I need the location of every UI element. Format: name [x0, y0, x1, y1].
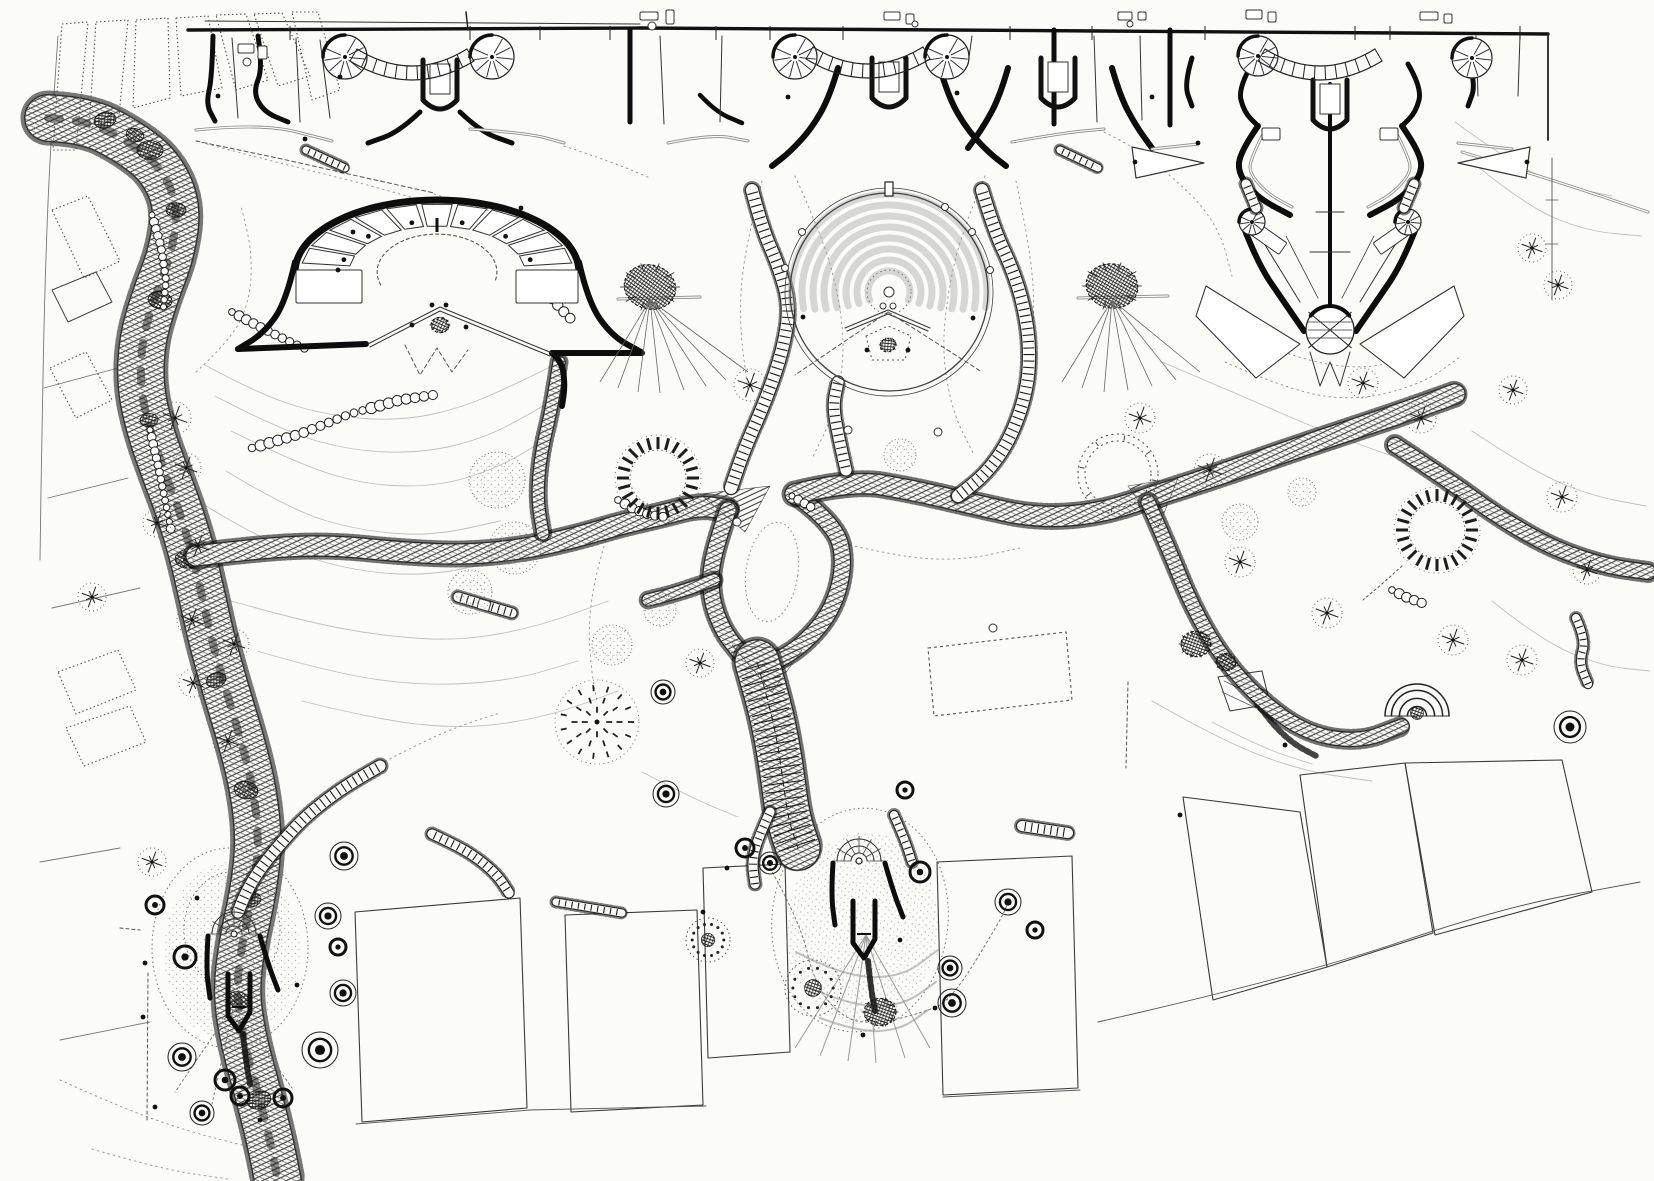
survey-dot	[141, 1015, 146, 1020]
survey-dot	[861, 1033, 866, 1038]
survey-dot	[258, 1118, 263, 1123]
small-circle	[989, 624, 997, 632]
small-circle	[648, 22, 656, 30]
stone-circle-target	[651, 680, 675, 704]
boulder	[166, 524, 175, 533]
furniture-rect	[1118, 12, 1132, 20]
small-circle	[733, 518, 741, 526]
planting-knoll	[489, 522, 541, 574]
survey-dot	[143, 961, 148, 966]
boulder	[163, 504, 170, 511]
site-plan-drawing	[0, 0, 1654, 1181]
small-circle	[912, 21, 918, 27]
survey-dot	[444, 303, 449, 308]
planting-knoll	[884, 439, 916, 471]
spiral-stair	[1238, 36, 1278, 76]
boulder	[333, 415, 342, 424]
survey-dot	[1150, 95, 1155, 100]
boulder	[160, 490, 167, 497]
furniture-rect	[884, 12, 900, 20]
boulder	[161, 297, 167, 303]
boulder	[162, 289, 169, 296]
planting-knoll	[1222, 504, 1258, 540]
boulder	[159, 483, 166, 490]
small-circle	[987, 267, 994, 274]
spiral-stair	[925, 35, 969, 79]
small-circle	[880, 303, 886, 309]
survey-dot	[195, 896, 200, 901]
boulder	[341, 412, 349, 420]
survey-dot	[933, 1006, 938, 1011]
furniture-rect	[296, 270, 362, 303]
small-circle	[844, 426, 852, 434]
survey-dot	[786, 95, 791, 100]
stone-circle-target	[938, 989, 966, 1017]
boulder	[324, 418, 333, 427]
boulder	[401, 394, 411, 404]
boulder	[156, 468, 164, 476]
survey-dot	[430, 303, 435, 308]
boulder	[806, 503, 814, 511]
survey-dot	[906, 348, 911, 353]
survey-dot	[351, 230, 356, 235]
planting-knoll	[644, 594, 676, 626]
small-circle	[782, 265, 789, 272]
furniture-rect	[1380, 128, 1398, 140]
boulder	[1417, 598, 1426, 607]
small-circle	[969, 229, 976, 236]
boulder	[162, 497, 169, 504]
small-circle	[799, 229, 806, 236]
small-circle	[243, 58, 251, 66]
survey-dot	[519, 206, 524, 211]
boulder	[162, 275, 169, 282]
small-circle	[942, 204, 949, 211]
boulder	[154, 461, 162, 469]
stone-circle-target	[190, 1101, 214, 1125]
boulder	[419, 392, 429, 402]
survey-dot	[464, 325, 469, 330]
survey-dot	[1178, 813, 1183, 818]
boulder	[565, 313, 575, 323]
survey-dot	[216, 94, 221, 99]
boulder	[157, 246, 165, 254]
boulder	[307, 424, 316, 433]
stone-circle-target	[653, 781, 679, 807]
boulder	[410, 393, 420, 403]
planting-knoll	[592, 625, 632, 665]
small-circle	[890, 303, 896, 309]
site-plan-page	[0, 0, 1654, 1181]
spiral-stair	[773, 35, 817, 79]
survey-dot	[153, 1105, 158, 1110]
boulder	[316, 421, 325, 430]
boulder	[165, 511, 171, 517]
boulder	[157, 475, 165, 483]
planting-knoll	[469, 452, 525, 508]
furniture-rect	[516, 270, 578, 303]
thicket-blob	[137, 141, 163, 160]
small-circle	[1127, 21, 1133, 27]
boulder	[160, 304, 166, 310]
spiral-stair	[1452, 38, 1492, 78]
stone-circle-target	[168, 1043, 196, 1071]
furniture-rect	[1268, 12, 1276, 22]
thicket-blob	[166, 202, 186, 217]
stone-circle-target	[330, 980, 356, 1006]
survey-dot	[865, 348, 870, 353]
boulder	[350, 409, 358, 417]
planting-knoll	[448, 570, 492, 614]
stone-circle-target	[315, 903, 341, 929]
survey-dot	[1196, 141, 1201, 146]
stone-circle-target	[759, 852, 781, 874]
survey-dot	[303, 137, 308, 142]
survey-dot	[1133, 160, 1138, 165]
small-circle	[884, 287, 894, 297]
boulder	[428, 390, 437, 399]
stone-circle-target	[330, 842, 358, 870]
furniture-rect	[258, 46, 267, 59]
furniture-rect	[1420, 12, 1438, 20]
survey-dot	[381, 205, 386, 210]
survey-dot	[725, 866, 730, 871]
survey-dot	[1525, 160, 1530, 165]
furniture-rect	[666, 10, 674, 24]
stone-circle-target	[995, 889, 1021, 915]
survey-dot	[338, 75, 343, 80]
survey-dot	[1283, 743, 1288, 748]
furniture-rect	[1246, 10, 1262, 19]
survey-dot	[336, 268, 341, 273]
spiral-stair	[323, 35, 367, 79]
furniture-rect	[1444, 14, 1452, 23]
furniture-rect	[1262, 128, 1280, 140]
furniture-rect	[238, 44, 254, 53]
furniture-rect	[1138, 12, 1146, 20]
survey-dot	[410, 323, 415, 328]
bowtie-stair	[1306, 306, 1354, 354]
spiral-stair	[470, 35, 514, 79]
survey-dot	[955, 91, 960, 96]
small-circle	[934, 428, 942, 436]
survey-dot	[801, 315, 806, 320]
stone-circle-target	[938, 956, 962, 980]
planting-knoll	[1288, 478, 1316, 506]
boulder	[160, 260, 168, 268]
survey-dot	[295, 983, 300, 988]
boulder	[162, 282, 169, 289]
survey-dot	[971, 316, 976, 321]
survey-dot	[898, 938, 903, 943]
boulder	[161, 267, 168, 274]
furniture-rect	[640, 12, 658, 20]
boulder	[159, 253, 167, 261]
survey-dot	[701, 910, 706, 915]
